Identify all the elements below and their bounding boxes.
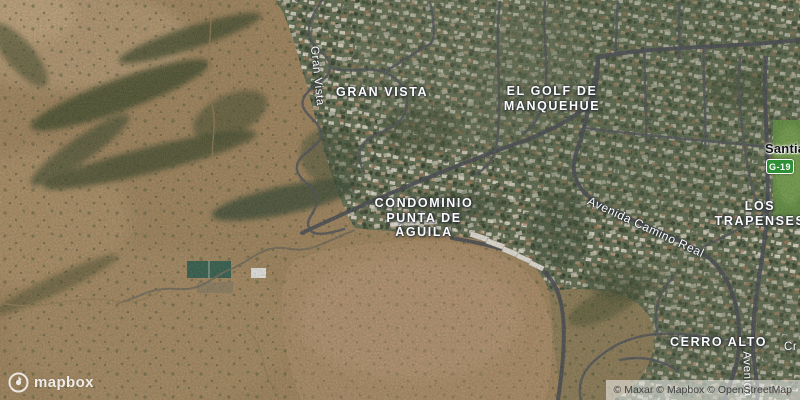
attribution-text[interactable]: © Maxar © Mapbox © OpenStreetMap [614, 384, 792, 396]
map-attribution[interactable]: © Maxar © Mapbox © OpenStreetMap [606, 380, 800, 400]
mapbox-logo-icon [8, 372, 29, 393]
satellite-imagery [0, 0, 800, 400]
mapbox-wordmark: mapbox [34, 374, 94, 391]
satellite-map-canvas[interactable]: Gran Vista GRAN VISTA EL GOLF DE MANQUEH… [0, 0, 800, 400]
mapbox-logo-link[interactable]: mapbox [8, 372, 94, 393]
route-shield-g19: G-19 [766, 159, 794, 174]
